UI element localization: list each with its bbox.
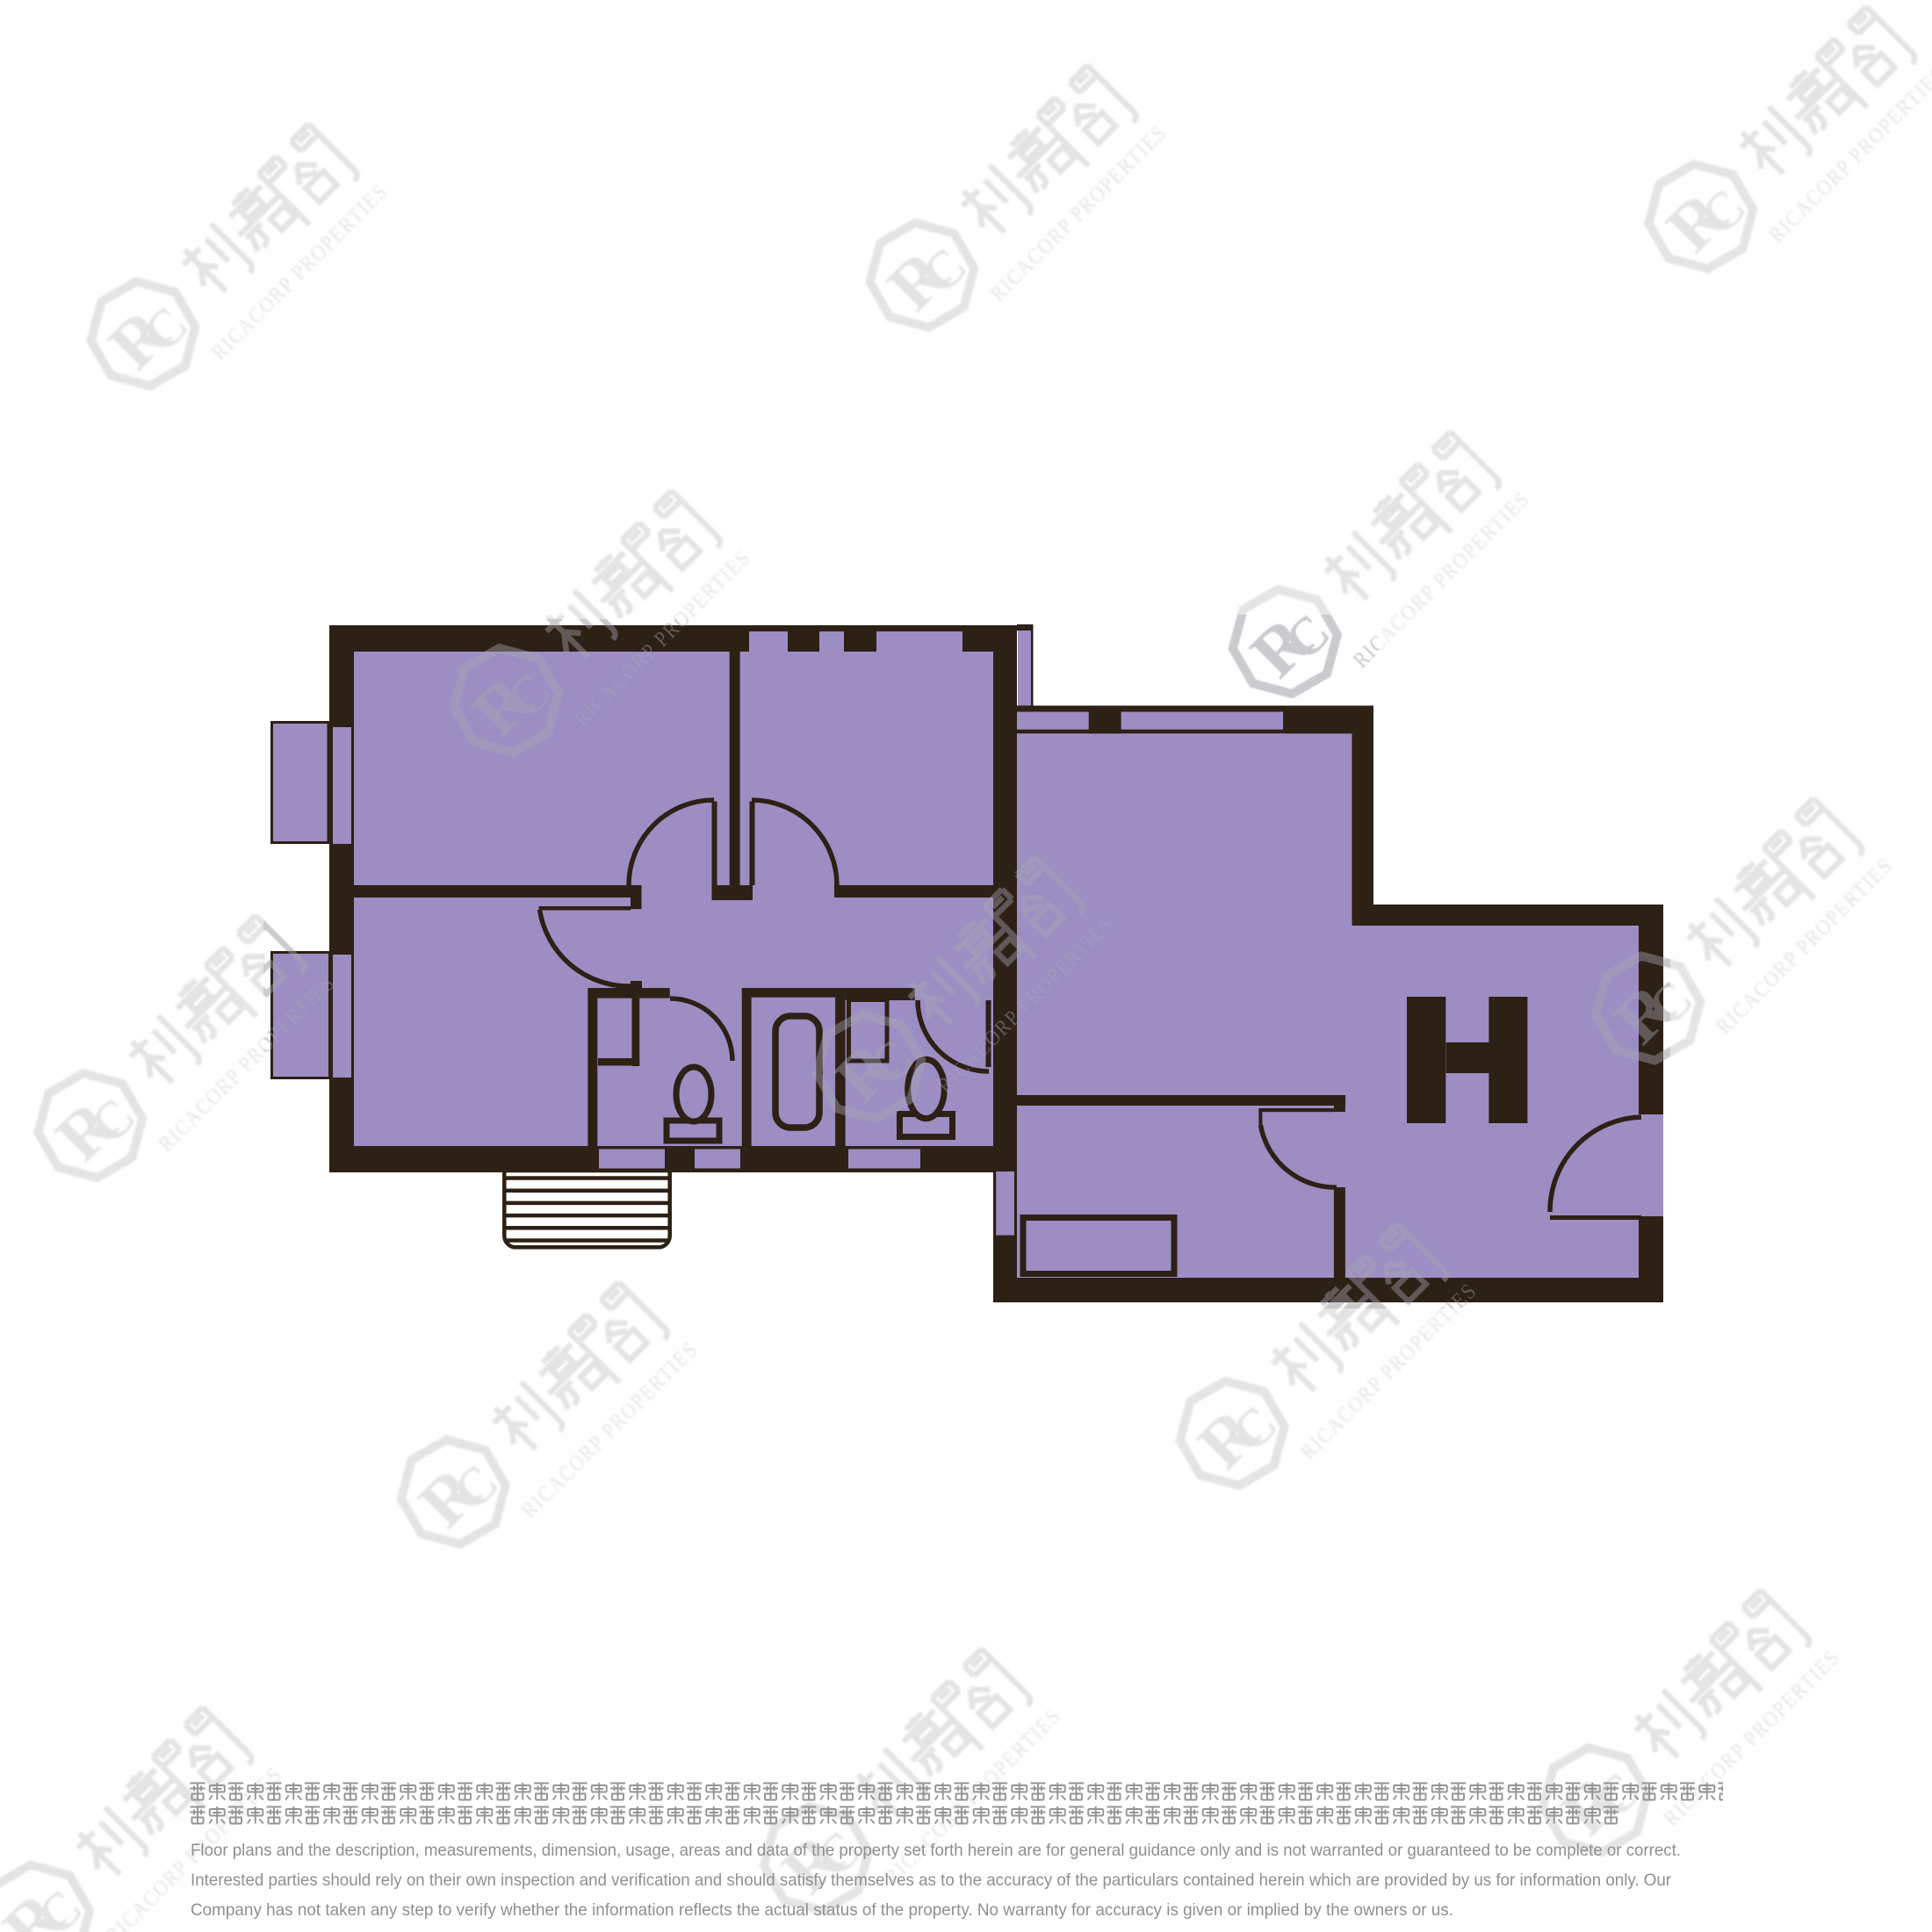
svg-text:Floor plans and the descriptio: Floor plans and the description, measure… (191, 1841, 1681, 1860)
svg-text:Interested parties should rely: Interested parties should rely on their … (191, 1871, 1671, 1890)
svg-text:Company has not taken any step: Company has not taken any step to verify… (191, 1900, 1453, 1920)
